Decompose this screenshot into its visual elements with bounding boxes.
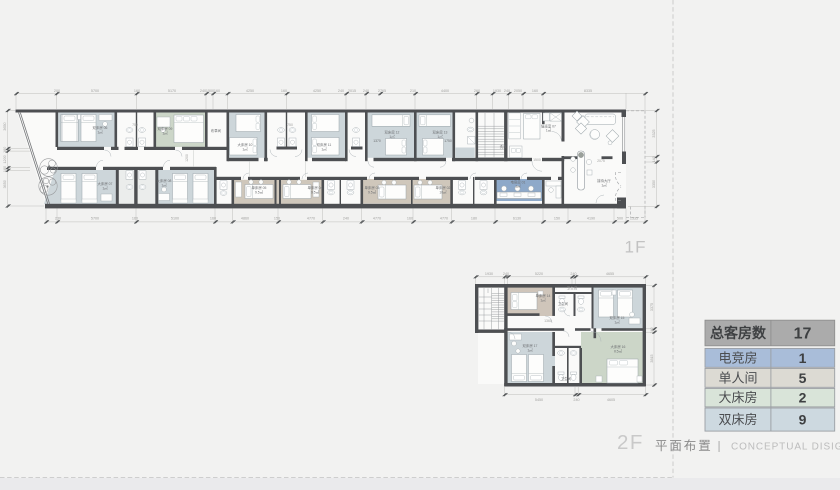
svg-text:1㎡: 1㎡ <box>162 131 168 136</box>
svg-text:单床房 04: 单床房 04 <box>308 185 323 190</box>
svg-text:10㎡: 10㎡ <box>439 190 447 195</box>
svg-text:160: 160 <box>3 147 7 153</box>
svg-text:260: 260 <box>474 89 480 93</box>
svg-text:|: | <box>718 439 721 453</box>
svg-text:4400: 4400 <box>441 89 449 93</box>
svg-text:双床房 06: 双床房 06 <box>93 125 108 130</box>
svg-text:160: 160 <box>3 166 7 172</box>
svg-text:4605: 4605 <box>607 398 615 402</box>
svg-text:3650: 3650 <box>3 180 7 188</box>
svg-text:1㎡: 1㎡ <box>527 348 533 353</box>
svg-text:1㎡: 1㎡ <box>540 298 546 303</box>
svg-text:240: 240 <box>338 89 344 93</box>
svg-text:1535: 1535 <box>630 217 638 221</box>
svg-text:大床房 16: 大床房 16 <box>611 344 626 349</box>
svg-text:双床房 13: 双床房 13 <box>433 130 448 135</box>
svg-text:4770: 4770 <box>373 217 381 221</box>
svg-text:1360: 1360 <box>544 319 552 323</box>
svg-text:总客房数: 总客房数 <box>710 325 767 341</box>
svg-text:卫生间: 卫生间 <box>558 301 569 306</box>
svg-text:1200: 1200 <box>3 155 7 163</box>
svg-text:1㎡: 1㎡ <box>242 147 248 152</box>
svg-text:4860: 4860 <box>241 217 249 221</box>
svg-text:电竞房: 电竞房 <box>718 351 757 366</box>
svg-text:双床房: 双床房 <box>718 412 757 427</box>
svg-text:单床房 03: 单床房 03 <box>365 185 380 190</box>
svg-text:4250: 4250 <box>246 89 254 93</box>
svg-text:1㎡: 1㎡ <box>546 128 552 133</box>
svg-text:2015: 2015 <box>348 89 356 93</box>
svg-text:1500: 1500 <box>206 89 214 93</box>
svg-text:150: 150 <box>274 217 280 221</box>
svg-text:750: 750 <box>287 123 293 127</box>
svg-text:240: 240 <box>363 89 369 93</box>
svg-text:1500: 1500 <box>533 158 541 162</box>
svg-text:单床房 05: 单床房 05 <box>252 185 267 190</box>
svg-text:4770: 4770 <box>307 217 315 221</box>
svg-text:4770: 4770 <box>440 217 448 221</box>
svg-text:双床房 11: 双床房 11 <box>317 142 332 147</box>
svg-text:8335: 8335 <box>584 89 592 93</box>
svg-text:3650: 3650 <box>3 122 7 130</box>
svg-text:240: 240 <box>650 327 654 333</box>
svg-text:6130: 6130 <box>513 217 521 221</box>
svg-text:接待大厅: 接待大厅 <box>597 178 611 183</box>
svg-text:双床房 09: 双床房 09 <box>158 126 173 131</box>
svg-text:750: 750 <box>132 123 138 127</box>
svg-text:140: 140 <box>652 156 656 162</box>
svg-text:卫生间: 卫生间 <box>567 286 578 291</box>
svg-text:3350: 3350 <box>652 180 656 188</box>
svg-text:1㎡: 1㎡ <box>389 134 395 139</box>
svg-text:4655: 4655 <box>606 272 614 276</box>
svg-text:大床房 08: 大床房 08 <box>157 178 172 183</box>
svg-text:5220: 5220 <box>535 272 543 276</box>
svg-text:1370: 1370 <box>373 139 381 143</box>
svg-text:CONCEPTUAL DISIGN: CONCEPTUAL DISIGN <box>731 442 840 453</box>
svg-text:160: 160 <box>532 89 538 93</box>
svg-text:1㎡: 1㎡ <box>161 183 167 188</box>
svg-text:240: 240 <box>504 89 510 93</box>
svg-text:1㎡: 1㎡ <box>97 130 103 135</box>
svg-text:卫生间: 卫生间 <box>561 376 572 381</box>
svg-text:1200: 1200 <box>185 154 189 162</box>
svg-text:5: 5 <box>799 370 807 386</box>
svg-text:1㎡: 1㎡ <box>601 183 607 188</box>
svg-text:5450: 5450 <box>535 398 543 402</box>
svg-text:1㎡: 1㎡ <box>515 184 521 189</box>
svg-text:平面布置: 平面布置 <box>655 439 713 453</box>
svg-text:160: 160 <box>134 89 140 93</box>
svg-text:180: 180 <box>471 217 477 221</box>
svg-text:150: 150 <box>554 217 560 221</box>
svg-text:3325: 3325 <box>652 129 656 137</box>
svg-text:大床房: 大床房 <box>718 390 757 405</box>
svg-text:240: 240 <box>503 272 509 276</box>
svg-text:230: 230 <box>55 217 61 221</box>
svg-text:双床房 17: 双床房 17 <box>523 343 538 348</box>
svg-text:单床房 02: 单床房 02 <box>436 185 451 190</box>
svg-text:500: 500 <box>617 217 623 221</box>
svg-text:单人间: 单人间 <box>718 371 757 386</box>
svg-text:双床房 15: 双床房 15 <box>610 315 625 320</box>
svg-text:双床房 12: 双床房 12 <box>385 130 400 135</box>
svg-text:1930: 1930 <box>485 272 493 276</box>
svg-text:1㎡: 1㎡ <box>614 320 620 325</box>
svg-text:240: 240 <box>570 272 576 276</box>
svg-text:1F: 1F <box>625 238 647 257</box>
svg-text:200: 200 <box>54 89 60 93</box>
svg-text:2F: 2F <box>617 431 644 454</box>
svg-text:9: 9 <box>799 412 807 428</box>
svg-text:160: 160 <box>407 217 413 221</box>
svg-text:大床房 10: 大床房 10 <box>238 142 253 147</box>
svg-text:5170: 5170 <box>168 89 176 93</box>
svg-text:240: 240 <box>573 398 579 402</box>
svg-text:1㎡: 1㎡ <box>102 186 108 191</box>
svg-text:160: 160 <box>214 89 220 93</box>
svg-text:1㎡: 1㎡ <box>437 134 443 139</box>
svg-text:布草间: 布草间 <box>211 128 222 133</box>
svg-text:1㎡: 1㎡ <box>321 147 327 152</box>
svg-text:5700: 5700 <box>91 217 99 221</box>
svg-text:17: 17 <box>794 325 812 342</box>
svg-text:210: 210 <box>410 89 416 93</box>
svg-text:2765: 2765 <box>378 89 386 93</box>
svg-text:2075: 2075 <box>597 159 605 163</box>
svg-text:4250: 4250 <box>313 89 321 93</box>
svg-text:160: 160 <box>281 89 287 93</box>
svg-text:1930: 1930 <box>493 89 501 93</box>
svg-text:160: 160 <box>210 217 216 221</box>
svg-text:大床房 07: 大床房 07 <box>98 181 113 186</box>
svg-text:洗衣: 洗衣 <box>500 144 507 149</box>
svg-text:3815: 3815 <box>650 354 654 362</box>
svg-text:9.5㎡: 9.5㎡ <box>255 190 264 195</box>
svg-text:Ⅱ.5㎡: Ⅱ.5㎡ <box>614 349 622 354</box>
svg-text:9.5㎡: 9.5㎡ <box>368 190 377 195</box>
svg-text:2: 2 <box>799 390 807 406</box>
svg-text:3375: 3375 <box>650 303 654 311</box>
svg-text:4190: 4190 <box>587 217 595 221</box>
svg-text:160: 160 <box>132 217 138 221</box>
svg-text:1: 1 <box>799 350 807 366</box>
svg-text:单床房 14: 单床房 14 <box>536 293 551 298</box>
svg-text:2050: 2050 <box>514 89 522 93</box>
svg-text:5700: 5700 <box>91 89 99 93</box>
svg-text:240: 240 <box>343 217 349 221</box>
svg-text:1750: 1750 <box>444 139 452 143</box>
svg-text:5100: 5100 <box>171 217 179 221</box>
svg-text:9.5㎡: 9.5㎡ <box>311 190 320 195</box>
